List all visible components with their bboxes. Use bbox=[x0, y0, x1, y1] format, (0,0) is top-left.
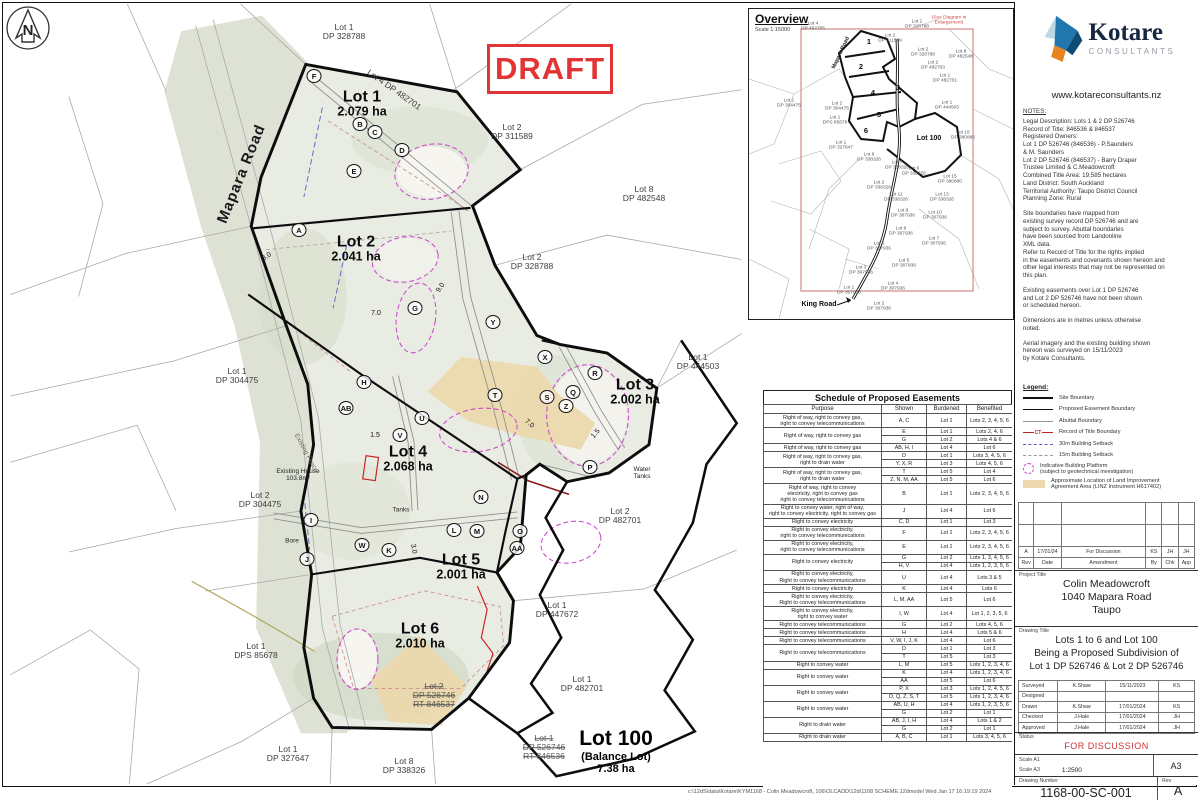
map-label: Lot 1DP 444503 bbox=[677, 353, 719, 371]
notes-paragraph: Aerial imagery and the existing building… bbox=[1023, 340, 1193, 363]
overview-label: Lot 2 DP 304475 bbox=[825, 102, 849, 113]
easement-marker-U: U bbox=[415, 411, 430, 425]
revision-table: A17/01/24For DiscussionKSJHJHRevDateAmen… bbox=[1018, 502, 1195, 569]
easement-tbody: PurposeShownBurdenedBenefitedRight of wa… bbox=[764, 405, 1013, 742]
legend-section: Legend: Site BoundaryProposed Easement B… bbox=[1023, 384, 1195, 493]
overview-label: Lot 2 DP 338326 bbox=[867, 181, 891, 192]
map-label: Lot 2DP 328788 bbox=[511, 253, 553, 271]
notes-paragraph: Site boundaries have mapped from existin… bbox=[1023, 210, 1193, 280]
legend-items: Site BoundaryProposed Easement BoundaryA… bbox=[1023, 394, 1195, 491]
easement-row: Right to convey waterKLot 4Lots 1, 2, 3,… bbox=[764, 669, 1013, 677]
overview-label: Lot 8 DP 338326 bbox=[857, 153, 881, 164]
rev-header-row: RevDateAmendmentByChkApp bbox=[1019, 558, 1195, 569]
north-arrow-icon: N bbox=[4, 4, 52, 52]
overview-label: Lot 1 DP 304475 bbox=[777, 99, 801, 110]
overview-label: 4 bbox=[871, 89, 875, 97]
easement-row: Right to convey electricity, Right to co… bbox=[764, 570, 1013, 584]
drawing-title-line: Lot 1 DP 526746 & Lot 2 DP 526746 bbox=[1015, 660, 1198, 673]
signoff-row: DrawnK.Shaw17/01/2024KS bbox=[1019, 702, 1195, 713]
map-label: 1.5 bbox=[370, 432, 380, 440]
plan-sheet: Lot 1DP 328788Lot 4 DP 482701Lot 12.079 … bbox=[0, 0, 1200, 800]
overview-label: 3 bbox=[896, 84, 900, 92]
drawing-number-label: Drawing Number bbox=[1015, 777, 1157, 784]
rev-value: A bbox=[1158, 784, 1198, 798]
easement-marker-M: M bbox=[470, 524, 485, 538]
map-label: Lot 1DPS 85678 bbox=[234, 642, 277, 660]
scale-a3-value: 1:2500 bbox=[1062, 767, 1082, 774]
site-swatch-icon bbox=[1023, 397, 1053, 400]
map-label: Lot 12.079 ha bbox=[337, 89, 386, 120]
map-label: 8.0 bbox=[261, 251, 273, 263]
overview-label: Lot 100 bbox=[917, 135, 942, 143]
overview-label: Lot 5 DP 307936 bbox=[892, 259, 916, 270]
easement-marker-G: G bbox=[408, 301, 423, 315]
easement-row: Right to convey electricity, Right to co… bbox=[764, 593, 1013, 607]
signoff-tbody: SurveyedK.Shaw15/11/2023KSDesignedDrawnK… bbox=[1019, 681, 1195, 734]
info-panel: Kotare CONSULTANTS www.kotareconsultants… bbox=[1014, 2, 1198, 785]
notes-body: Legal Description: Lots 1 & 2 DP 526746 … bbox=[1023, 118, 1193, 363]
easement-marker-K: K bbox=[382, 543, 397, 557]
signoff-row: SurveyedK.Shaw15/11/2023KS bbox=[1019, 681, 1195, 692]
map-label: 7.0 bbox=[371, 310, 381, 318]
easement-marker-E: E bbox=[347, 164, 362, 178]
overview-label: Lot 1 DP 327647 bbox=[829, 141, 853, 152]
drawing-title-line: Lots 1 to 6 and Lot 100 bbox=[1015, 634, 1198, 647]
overview-scale: Scale 1:15000 bbox=[755, 27, 790, 33]
notes-paragraph: Legal Description: Lots 1 & 2 DP 526746 … bbox=[1023, 118, 1193, 203]
easement-row: Right to convey electricity, right to co… bbox=[764, 526, 1013, 540]
easement-schedule-title: Schedule of Proposed Easements bbox=[763, 390, 1012, 405]
easement-marker-T: T bbox=[488, 388, 503, 402]
notes-section: NOTES: Legal Description: Lots 1 & 2 DP … bbox=[1023, 108, 1193, 370]
easement-marker-S: S bbox=[540, 390, 555, 404]
project-title-label: Project Title bbox=[1015, 571, 1198, 578]
easement-header-row: PurposeShownBurdenedBenefited bbox=[764, 405, 1013, 414]
notes-paragraph: Dimensions are in metres unless otherwis… bbox=[1023, 317, 1193, 333]
easement-marker-AB: AB bbox=[339, 401, 354, 415]
easement-row: Right to convey waterAB, U, HLot 4Lots 1… bbox=[764, 701, 1013, 709]
overview-label: Lot 3 DP 307936 bbox=[849, 266, 873, 277]
easement-row: Right to drain waterA, B, CLot 1Lots 3, … bbox=[764, 733, 1013, 741]
project-title-block: Project Title Colin Meadowcroft 1040 Map… bbox=[1015, 570, 1198, 617]
file-path-text: c:\12dS\data\Kotare\KYM1168 - Colin Mead… bbox=[688, 789, 991, 795]
map-label: Lot 1DP 304475 bbox=[216, 367, 258, 385]
overview-label: King Road bbox=[802, 301, 837, 309]
easement-marker-N: N bbox=[474, 490, 489, 504]
easement-marker-J: J bbox=[300, 552, 315, 566]
brand-tagline: CONSULTANTS bbox=[1089, 47, 1176, 56]
svg-text:N: N bbox=[23, 22, 34, 39]
legend-item: Proposed Easement Boundary bbox=[1023, 405, 1195, 414]
sheet-size: A3 bbox=[1153, 755, 1198, 777]
overview-label: Lot 7 DP 307936 bbox=[922, 237, 946, 248]
map-label: 1.5 bbox=[590, 428, 602, 440]
easement-marker-X: X bbox=[538, 350, 553, 364]
easement-marker-V: V bbox=[393, 428, 408, 442]
overview-label: Lot 15 DP 380880 bbox=[938, 175, 962, 186]
overview-label: Lot 1 DP 482701 bbox=[933, 74, 957, 85]
easement-row: Right to convey telecommunicationsDLot 1… bbox=[764, 645, 1013, 653]
map-label: Lot 1DP 482701 bbox=[561, 675, 603, 693]
setback30-swatch-icon bbox=[1023, 444, 1053, 445]
easement-row: Right to convey electricity, right to co… bbox=[764, 607, 1013, 621]
rev-empty-row bbox=[1019, 525, 1195, 547]
easement-row: Right to convey electricityGLot 2Lots 1,… bbox=[764, 554, 1013, 562]
notes-paragraph: Existing easements over Lot 1 DP 526746 … bbox=[1023, 287, 1193, 310]
abuttal-swatch-icon bbox=[1023, 421, 1053, 422]
easement-schedule-table: PurposeShownBurdenedBenefitedRight of wa… bbox=[763, 404, 1012, 742]
easement-marker-Z: Z bbox=[559, 399, 574, 413]
map-label: Mapara Road bbox=[215, 122, 269, 226]
rev-label: Rev bbox=[1158, 777, 1198, 784]
kotare-logo: Kotare CONSULTANTS bbox=[1015, 12, 1198, 64]
scale-a1-label: Scale A1 bbox=[1019, 757, 1040, 763]
drawing-title-line: Being a Proposed Subdivision of bbox=[1015, 647, 1198, 660]
map-label: Lot 2DP 526746 RT 846537 bbox=[413, 682, 455, 710]
brand-name: Kotare bbox=[1089, 20, 1176, 45]
website-link[interactable]: www.kotareconsultants.nz bbox=[1015, 90, 1198, 101]
subdivision-map: Lot 1DP 328788Lot 4 DP 482701Lot 12.079 … bbox=[4, 4, 748, 784]
map-label: 3.0 bbox=[408, 544, 417, 555]
easement-marker-D: D bbox=[395, 143, 410, 157]
overview-label: Lot 4 DP 482705 bbox=[801, 22, 825, 33]
overview-label: Lot 8 DP 482548 bbox=[949, 50, 973, 61]
draft-stamp: DRAFT bbox=[487, 44, 613, 94]
legend-item: 30m Building Setback bbox=[1023, 440, 1195, 449]
overview-label: Lot 1 DPS 85678 bbox=[823, 116, 848, 127]
easement-row: Right of way, right to convey gasAB, H, … bbox=[764, 444, 1013, 452]
map-label: Lot 1DP 447672 bbox=[536, 601, 578, 619]
easement-marker-R: R bbox=[588, 366, 603, 380]
easement-marker-A: A bbox=[292, 223, 307, 237]
overview-label: Lot 2 DP 482703 bbox=[921, 61, 945, 72]
overview-label: Lot 13 DP 338326 bbox=[930, 193, 954, 204]
scale-block: Scale A1 Scale A31:2500 A3 bbox=[1015, 754, 1198, 777]
map-label: Lot 8DP 482548 bbox=[623, 185, 665, 203]
map-label: Lot 1DP 327647 bbox=[267, 745, 309, 763]
map-label: Lot 2DP 311589 bbox=[491, 123, 533, 141]
easement-marker-B: B bbox=[353, 117, 368, 131]
easement-row: Right to convey electricity, right to co… bbox=[764, 540, 1013, 554]
legend-item: Approximate Location of Land Improvement… bbox=[1023, 478, 1195, 491]
overview-label: Lot 15 DP 380880 bbox=[951, 131, 975, 142]
map-label: Lot 62.010 ha bbox=[395, 621, 444, 652]
setback15-swatch-icon bbox=[1023, 455, 1053, 456]
rev-tbody: A17/01/24For DiscussionKSJHJHRevDateAmen… bbox=[1019, 503, 1195, 569]
lia-swatch-icon bbox=[1023, 480, 1045, 488]
rev-data-row: A17/01/24For DiscussionKSJHJH bbox=[1019, 547, 1195, 558]
overview-label: 6 bbox=[864, 127, 868, 135]
map-label: Lot 8DP 338326 bbox=[383, 757, 425, 775]
signoff-row: Designed bbox=[1019, 691, 1195, 702]
easement-marker-AA: AA bbox=[510, 541, 525, 555]
easement-marker-P: P bbox=[583, 460, 598, 474]
easement-row: Right to convey telecommunicationsHLot 4… bbox=[764, 629, 1013, 637]
map-label: WaterTanks bbox=[633, 466, 650, 480]
overview-label: 2 bbox=[859, 63, 863, 71]
easement-row: Right to convey telecommunicationsGLot 2… bbox=[764, 621, 1013, 629]
easement-marker-L: L bbox=[447, 523, 462, 537]
easement-marker-Y: Y bbox=[486, 315, 501, 329]
scale-a3-label: Scale A3 bbox=[1019, 767, 1040, 773]
notes-title: NOTES: bbox=[1023, 108, 1193, 116]
easement-marker-H: H bbox=[357, 375, 372, 389]
easement-schedule: Schedule of Proposed Easements PurposeSh… bbox=[763, 390, 1012, 789]
overview-label: 5 bbox=[877, 111, 881, 119]
easement-row: Right of way, right to convey electricit… bbox=[764, 484, 1013, 504]
easement-marker-I: I bbox=[304, 513, 319, 527]
easement-row: Right to drain waterAB, J, I, HLot 4Lots… bbox=[764, 717, 1013, 725]
kingfisher-icon bbox=[1038, 12, 1084, 64]
map-label: 7.0 bbox=[523, 418, 535, 430]
status-block: Status FOR DISCUSSION bbox=[1015, 732, 1198, 751]
drawing-number: 1168-00-SC-001 bbox=[1015, 786, 1157, 800]
overview-label: 1 bbox=[867, 38, 871, 46]
map-label: Lot 32.002 ha bbox=[610, 377, 659, 408]
map-label: Lot 2DP 304475 bbox=[239, 491, 281, 509]
signoff-row: CheckedJ.Hale17/01/2024JH bbox=[1019, 712, 1195, 723]
drawing-number-block: Drawing Number 1168-00-SC-001 Rev A bbox=[1015, 776, 1198, 800]
easement-row: Right to convey water, right of way, rig… bbox=[764, 504, 1013, 518]
easement-marker-O: O bbox=[513, 524, 528, 538]
overview-label: Lot 6 DP 307936 bbox=[867, 242, 891, 253]
easement-swatch-icon bbox=[1023, 409, 1053, 410]
overview-label: Lot 9 DP 307936 bbox=[891, 209, 915, 220]
easement-row: Right to convey telecommunicationsV, W, … bbox=[764, 637, 1013, 645]
overview-labels: (See Diagram in Enlargement)Lot 4 DP 482… bbox=[749, 9, 1013, 319]
signoff-table: SurveyedK.Shaw15/11/2023KSDesignedDrawnK… bbox=[1018, 680, 1195, 734]
easement-marker-Q: Q bbox=[566, 385, 581, 399]
legend-item: 15m Building Setback bbox=[1023, 451, 1195, 460]
overview-label: Lot 6 DP 338326 bbox=[902, 167, 926, 178]
map-label: Lot 2DP 482701 bbox=[599, 507, 641, 525]
easement-marker-F: F bbox=[307, 69, 322, 83]
easement-row: Right of way, right to convey gas, right… bbox=[764, 468, 1013, 476]
status-label: Status bbox=[1015, 733, 1198, 740]
overview-label: Lot 8 DP 307936 bbox=[889, 227, 913, 238]
ct-swatch-icon: CT bbox=[1023, 429, 1053, 437]
easement-row: Right to convey electricityKLot 4Lots 6 bbox=[764, 585, 1013, 593]
legend-item: Abuttal Boundary bbox=[1023, 417, 1195, 426]
legend-title: Legend: bbox=[1023, 384, 1195, 391]
project-title-line: 1040 Mapara Road bbox=[1015, 591, 1198, 604]
overview-label: Lot 1 DP 444503 bbox=[935, 101, 959, 112]
map-label: Tanks bbox=[393, 506, 410, 513]
easement-row: Right of way, right to convey gasELot 1L… bbox=[764, 428, 1013, 436]
drawing-title-label: Drawing Title bbox=[1015, 627, 1198, 634]
map-label: Lot 22.041 ha bbox=[331, 234, 380, 265]
overview-label: Lot 11 DP 338326 bbox=[884, 193, 908, 204]
rev-empty-row bbox=[1019, 503, 1195, 525]
map-label: Lot 52.001 ha bbox=[436, 552, 485, 583]
map-label: 9.0 bbox=[435, 282, 447, 294]
drawing-title-block: Drawing Title Lots 1 to 6 and Lot 100 Be… bbox=[1015, 626, 1198, 673]
platform-swatch-icon bbox=[1023, 463, 1034, 474]
easement-marker-W: W bbox=[355, 538, 370, 552]
map-label: Lot 1DP 526746 RT 846536 bbox=[523, 734, 565, 762]
legend-item: CTRecord of Title Boundary bbox=[1023, 428, 1195, 437]
overview-label: Lot 1 DP 328788 bbox=[905, 20, 929, 31]
easement-row: Right to convey waterL, MLot 5Lots 1, 2,… bbox=[764, 661, 1013, 669]
easement-row: Right of way, right to convey gas, right… bbox=[764, 452, 1013, 460]
overview-label: Lot 1 DP 307936 bbox=[837, 286, 861, 297]
overview-inset-map: Overview Scale 1:15000 (See Diagram in E… bbox=[748, 8, 1014, 320]
easement-marker-C: C bbox=[368, 125, 383, 139]
easement-row: Right of way, right to convey gas, right… bbox=[764, 414, 1013, 428]
overview-label: Lot 2 DP 328788 bbox=[911, 48, 935, 59]
overview-label: Lot 4 DP 307936 bbox=[881, 282, 905, 293]
map-label: Lot 42.068 ha bbox=[383, 444, 432, 475]
map-label: Bore bbox=[285, 537, 299, 544]
legend-item: Site Boundary bbox=[1023, 394, 1195, 403]
project-title-line: Colin Meadowcroft bbox=[1015, 578, 1198, 591]
easement-row: Right to convey electricityC, DLot 1Lot … bbox=[764, 518, 1013, 526]
easement-row: Right to convey waterP, XLot 3Lots 1, 2,… bbox=[764, 685, 1013, 693]
project-title-line: Taupo bbox=[1015, 604, 1198, 617]
map-label: Lot 1DP 328788 bbox=[323, 23, 365, 41]
map-labels: Lot 1DP 328788Lot 4 DP 482701Lot 12.079 … bbox=[4, 4, 748, 784]
map-label: Lot 100(Balance Lot) 7.38 ha bbox=[579, 728, 653, 776]
legend-item: Indicative Building Platform (subject to… bbox=[1023, 463, 1195, 476]
overview-label: Lot 10 DP 307936 bbox=[923, 211, 947, 222]
status-value: FOR DISCUSSION bbox=[1015, 741, 1198, 751]
overview-label: Mapara Road bbox=[831, 36, 851, 70]
overview-label: Lot 2 DP 311589 bbox=[878, 34, 902, 45]
overview-label: Lot 2 DP 307936 bbox=[867, 302, 891, 313]
